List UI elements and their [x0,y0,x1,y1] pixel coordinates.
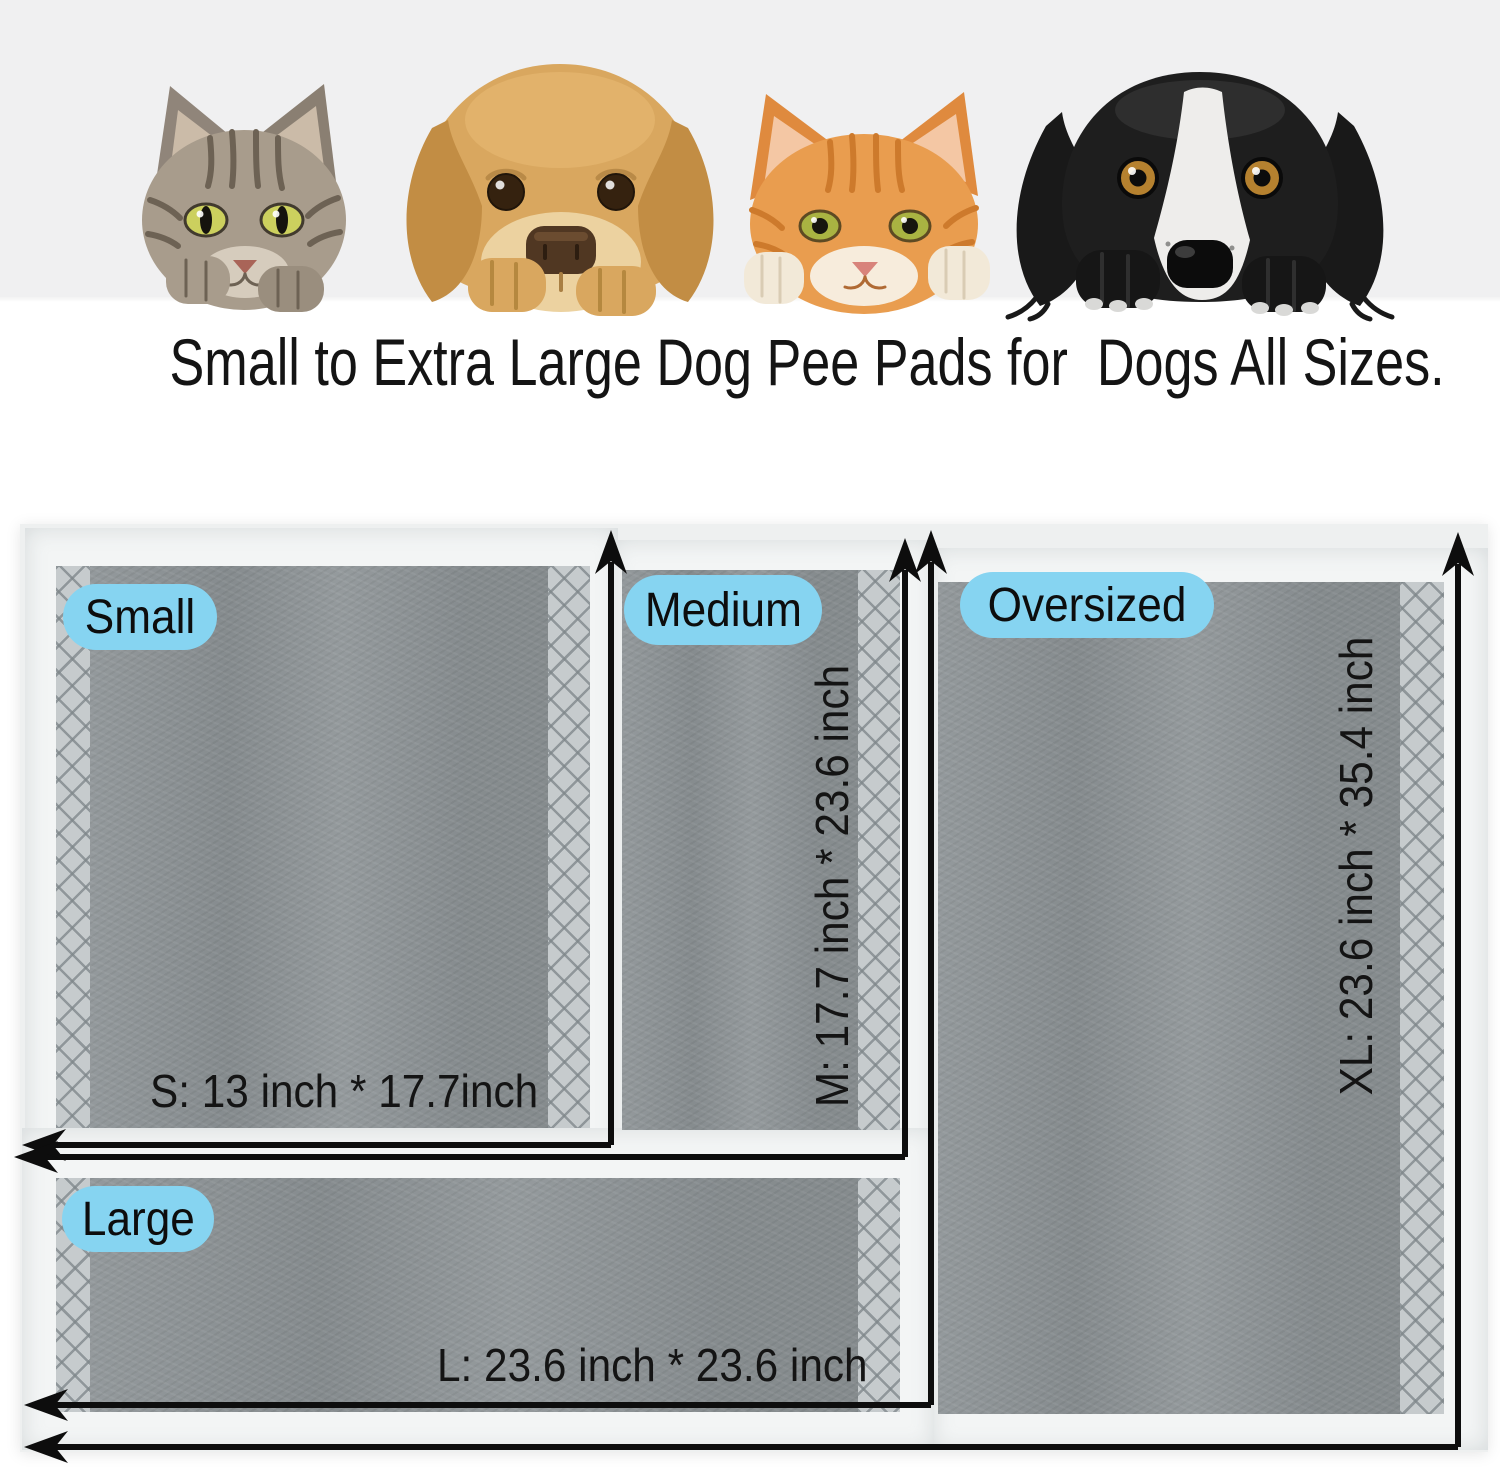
oversized-size-label: Oversized [960,572,1214,638]
orange-cat-photo [744,92,990,314]
headline-text: Small to Extra Large Dog Pee Pads for Do… [169,324,1444,400]
oversized-pad-hatch-right [1400,582,1444,1414]
medium-size-label-text: Medium [644,583,801,638]
oversized-size-label-text: Oversized [988,578,1187,633]
large-size-label: Large [62,1186,214,1252]
golden-retriever-photo [407,64,714,316]
large-size-label-text: Large [82,1192,195,1247]
tabby-cat-photo [142,84,346,312]
black-white-dog-photo [1008,72,1392,319]
medium-pad-hatch-right [858,570,900,1130]
large-dimension-text: L: 23.6 inch * 23.6 inch [437,1338,905,1392]
product-infographic: Small to Extra Large Dog Pee Pads for Do… [0,0,1500,1472]
small-size-label-text: Small [85,590,195,645]
oversized-dimension-text: XL: 23.6 inch * 35.4 inch [1329,617,1383,1116]
medium-size-label: Medium [624,575,822,645]
medium-dimension-text: M: 17.7 inch * 23.6 inch [805,646,859,1127]
small-pad-hatch-left [56,566,90,1128]
small-pad-hatch-right [548,566,590,1128]
small-size-label: Small [63,584,217,650]
pets-photo-strip [0,0,1500,322]
small-pad-core [90,566,548,1128]
headline: Small to Extra Large Dog Pee Pads for Do… [0,324,1500,400]
small-dimension-text: S: 13 inch * 17.7inch [150,1064,572,1118]
